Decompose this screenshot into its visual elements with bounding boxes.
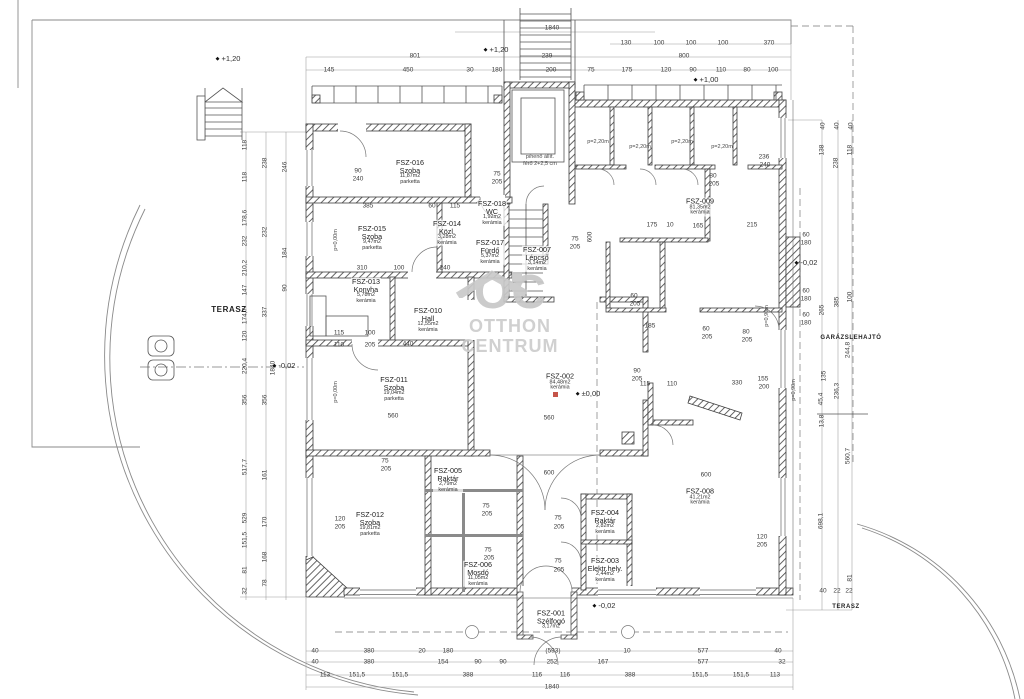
- watermark-roof-icon: [452, 270, 536, 298]
- door-swings: [340, 131, 779, 665]
- openings: [304, 118, 788, 597]
- floor-plan-canvas: OC OTTHON CENTRUM FSZ-016Szoba11,87m2par…: [0, 0, 1024, 699]
- watermark-accent-dot: [553, 392, 558, 397]
- watermark-line1: OTTHON: [452, 316, 568, 337]
- watermark: OC OTTHON CENTRUM: [452, 270, 568, 357]
- thin-partitions: [425, 489, 523, 592]
- watermark-line2: CENTRUM: [452, 336, 568, 357]
